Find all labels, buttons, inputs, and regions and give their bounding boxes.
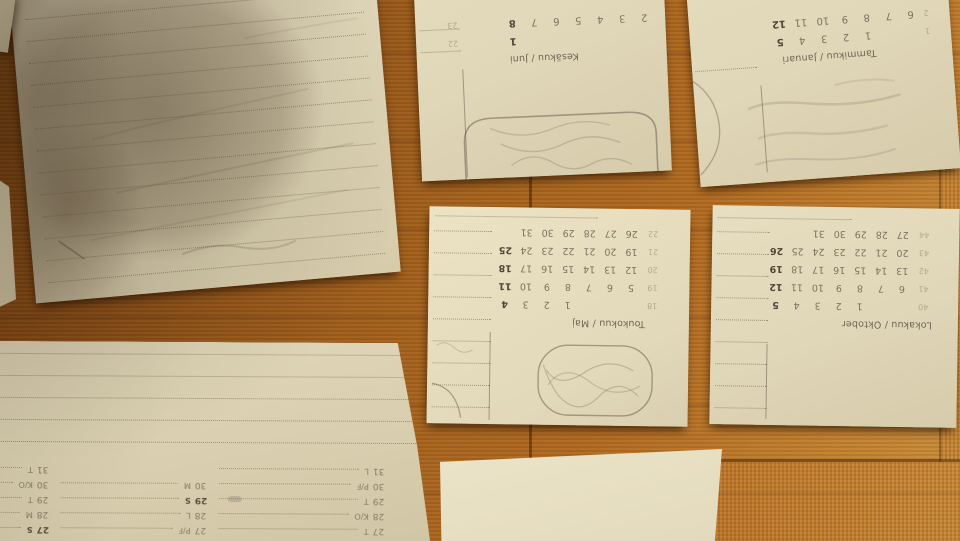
calendar-grid: 1812341956789101120121314151617182119202… [428,221,690,315]
planner-weekday-letter: T [28,464,33,475]
day-number: 11 [494,276,515,294]
ruled-line [718,217,852,220]
calendar-week-row: 2119202122232425 [429,239,690,261]
day-number: 9 [833,8,856,28]
calendar-card-october: Lokakuu / Oktober 4012345416789101112421… [709,205,959,428]
day-number: 20 [892,243,913,261]
day-number [612,26,635,45]
week-number: 44 [919,225,935,243]
card-face: Tammikuu / Januari 11234526789101112 [680,0,960,187]
day-number: 16 [829,260,850,278]
day-number: 23 [537,241,558,259]
planner-weekday-letter: P/F [357,481,369,492]
day-number: 14 [579,259,600,277]
calendar-week-row: 442728293031 [712,222,959,244]
day-number: 23 [829,242,850,260]
calendar-card-january: Tammikuu / Januari 11234526789101112 [680,0,960,187]
day-number: 27 [600,224,621,242]
day-number: 12 [621,260,642,278]
day-number: 5 [567,10,590,29]
ruled-line [219,483,351,485]
calendar-grid: 122234567823 [415,7,666,54]
tape-smudge [228,496,242,502]
planner-date: 28 [37,509,55,519]
planner-date: 29 [373,496,391,506]
day-number: 28 [579,223,600,241]
day-number: 8 [855,7,878,27]
day-number [870,297,891,315]
day-number: 31 [516,222,537,240]
day-number: 27 [892,225,913,243]
planner-day-row: 28K/O [217,510,391,525]
planner-weekday-letter: T [364,526,369,537]
day-number: 13 [892,261,913,279]
ruled-line [61,482,178,484]
card-face: Kesäkuu / Juni 122234567823 [410,0,672,181]
day-number: 3 [812,28,835,48]
ruled-line [0,497,22,498]
day-number [546,29,569,48]
day-number: 4 [589,9,612,28]
day-number: 3 [807,296,828,314]
planner-weekday-letter: S [185,495,191,506]
day-number: 1 [557,295,578,313]
day-number: 17 [516,258,537,276]
pencil-doodle [417,59,672,182]
day-number: 29 [850,224,871,242]
photo-scene: Kesäkuu / Juni 122234567823 Tammikuu / J… [0,0,960,541]
day-number: 7 [578,277,599,295]
ruled-line [61,497,179,499]
planner-date: 31 [37,464,55,474]
planner-weekday-letter: T [28,494,33,505]
day-number [891,297,912,315]
planner-weekday-letter: M [184,480,191,491]
doodle-zone [692,53,960,187]
ruled-line [219,468,359,470]
day-number: 5 [769,31,792,51]
planner-day-row: 28L [59,509,213,524]
day-number [578,295,599,313]
day-number: 11 [789,12,812,32]
planner-date: 31 [373,466,391,476]
day-number: 31 [808,224,829,242]
card-edge-sliver [0,176,16,310]
day-number: 4 [790,30,813,50]
planner-weekday-letter: S [27,524,33,535]
ruled-line [219,513,349,515]
day-number: 22 [558,241,579,259]
planner-weekday-letter: K/O [19,479,33,490]
day-number: 2 [633,7,656,26]
week-number: 42 [919,261,935,279]
day-number: 8 [849,278,870,296]
doodle-zone [417,59,672,182]
planner-day-row: 27T [217,525,391,540]
day-number: 11 [786,277,807,295]
week-number: 19 [647,278,663,296]
planner-date: 27 [195,525,213,535]
planner-weekday-letter: K/O [354,511,368,522]
calendar-grid: 4012345416789101112421314151617181943202… [711,222,959,316]
day-number: 6 [599,278,620,296]
week-number: 21 [648,242,664,260]
day-number [900,22,923,42]
week-number: 41 [918,279,934,297]
day-number: 18 [495,258,516,276]
planner-day-row: 27P/F [59,524,213,539]
day-number: 2 [834,26,857,46]
planner-day-row: 30M [59,479,213,494]
planner-date: 28 [195,510,213,520]
day-number [495,222,516,240]
planner-day-row: 29T [217,495,391,510]
day-number: 7 [523,12,546,31]
day-number: 2 [536,295,557,313]
month-title: Toukokuu / Maj [428,311,645,330]
calendar-block: Toukokuu / Maj 1812341956789101120121314… [428,221,690,331]
day-number: 15 [850,260,871,278]
wood-grain-patch [690,462,960,541]
day-number: 1 [502,31,525,50]
planner-date: 27 [37,524,55,534]
week-number: 43 [919,243,935,261]
ruled-line [0,512,20,513]
doodle-zone [426,327,688,427]
planner-day-row: 31T [0,464,55,478]
day-number: 7 [870,279,891,297]
planner-day-row: 31L [217,465,391,480]
week-number: 22 [648,224,664,242]
day-number: 10 [807,278,828,296]
day-number [766,223,787,241]
day-number: 24 [808,242,829,260]
ruled-line [61,527,173,529]
day-number: 10 [811,10,834,30]
day-number: 3 [515,294,536,312]
day-number: 19 [766,259,787,277]
week-number: 23 [441,16,458,35]
ruled-line [219,528,358,530]
doodle-zone [709,328,957,428]
day-number: 7 [877,5,900,25]
planner-date: 29 [195,495,213,505]
calendar-week-row: 19567891011 [428,275,689,297]
day-number: 19 [621,242,642,260]
day-number: 6 [545,11,568,30]
day-number: 30 [829,224,850,242]
day-number: 26 [766,241,787,259]
day-number: 12 [767,13,790,33]
planner-day-row: 30P/F [217,480,391,495]
day-number [599,296,620,314]
day-number: 21 [871,243,892,261]
ruled-line [435,215,597,218]
ruled-line [0,482,13,483]
day-number: 28 [871,225,892,243]
day-number: 25 [495,240,516,258]
week-number: 18 [647,296,663,314]
day-number: 25 [787,241,808,259]
day-number: 15 [558,259,579,277]
day-number: 4 [494,294,515,312]
day-number: 10 [515,276,536,294]
calendar-week-row: 22262728293031 [429,221,690,243]
ruled-line [61,512,181,514]
week-number: 2 [923,2,940,21]
blank-note-card [9,0,400,303]
week-number: 1 [924,20,941,39]
day-number: 8 [501,13,524,32]
day-number [568,28,591,47]
planner-day-row: 29T [0,494,55,508]
day-number: 20 [600,242,621,260]
day-number: 17 [808,260,829,278]
calendar-card-june: Kesäkuu / Juni 122234567823 [410,0,672,181]
ruled-line [0,527,21,528]
calendar-block: Lokakuu / Oktober 4012345416789101112421… [711,222,960,332]
planner-weekday-letter: L [186,510,191,521]
day-number [524,30,547,49]
day-number: 6 [891,279,912,297]
day-number: 24 [516,240,537,258]
day-number [634,25,657,44]
day-number: 9 [536,277,557,295]
day-number: 9 [828,278,849,296]
planner-date: 30 [37,479,55,489]
day-number: 8 [557,277,578,295]
planner-weekday-letter: P/F [178,525,190,536]
day-number: 14 [871,261,892,279]
day-number: 29 [558,223,579,241]
day-number: 3 [611,8,634,27]
calendar-card-may: Toukokuu / Maj 1812341956789101120121314… [426,206,690,427]
day-number [590,27,613,46]
day-number [787,223,808,241]
day-number: 18 [787,259,808,277]
planner-weekday-letter: L [364,466,369,477]
day-number: 16 [537,259,558,277]
planner-date: 28 [373,511,391,521]
day-number: 2 [828,296,849,314]
day-number: 13 [600,260,621,278]
day-number: 5 [620,278,641,296]
planner-date: 30 [373,481,391,491]
card-face: Lokakuu / Oktober 4012345416789101112421… [709,205,959,428]
blank-card [440,449,722,541]
week-number: 22 [442,34,459,53]
planner-date: 30 [195,480,213,490]
planner-weekday-letter: M [26,509,33,520]
planner-weekday-letter: T [364,496,369,507]
planner-date: 29 [37,494,55,504]
day-number: 30 [537,223,558,241]
day-number: 4 [786,295,807,313]
calendar-block: Kesäkuu / Juni 122234567823 [415,7,667,70]
week-number: 20 [648,260,664,278]
day-number: 1 [849,296,870,314]
day-number: 6 [899,4,922,24]
day-number: 21 [579,241,600,259]
planner-date: 27 [373,526,391,536]
day-number [620,296,641,314]
planner-day-row: 30K/O [0,479,55,493]
pencil-scribbles [692,53,960,187]
day-planner-card: 26M27T28K/O29T30P/F31L27P/F28L29S30M27S2… [0,341,436,541]
day-number: 22 [850,242,871,260]
planner-day-row: 28M [0,509,55,523]
planner-day-row: 29S [59,494,213,509]
pencil-doodle [426,327,688,427]
day-number [878,23,901,43]
week-number: 40 [918,297,934,315]
card-face: 26M27T28K/O29T30P/F31L27P/F28L29S30M27S2… [0,341,436,541]
day-number: 12 [765,277,786,295]
card-face: Toukokuu / Maj 1812341956789101120121314… [426,206,690,427]
day-number: 1 [856,25,879,45]
ruled-line [0,467,22,468]
day-number: 26 [621,224,642,242]
planner-day-row: 27S [0,524,55,538]
